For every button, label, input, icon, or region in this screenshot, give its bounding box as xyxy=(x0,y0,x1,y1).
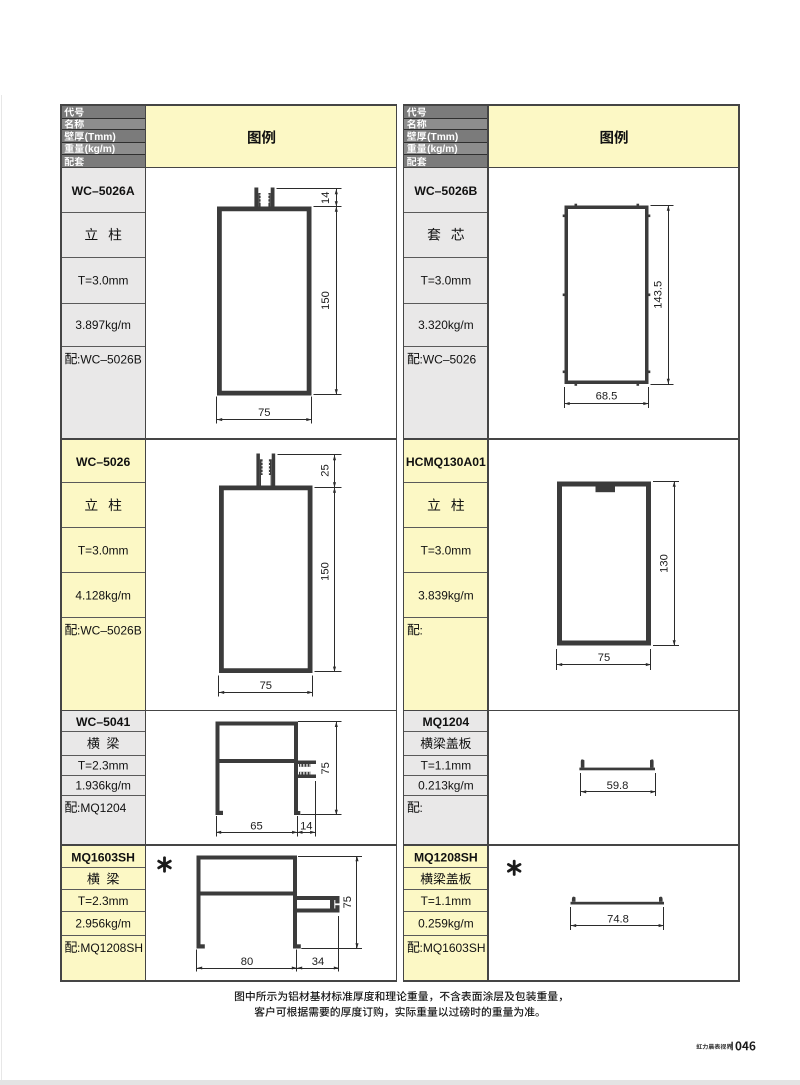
svg-text:150: 150 xyxy=(319,562,331,581)
svg-text::WC–5026: :WC–5026 xyxy=(420,352,477,366)
svg-text:0.259kg/m: 0.259kg/m xyxy=(418,917,474,931)
svg-text:(Tmm): (Tmm) xyxy=(85,132,116,143)
svg-text:T=1.1mm: T=1.1mm xyxy=(421,758,472,772)
svg-text:WC–5041: WC–5041 xyxy=(76,715,130,729)
svg-text::MQ1208SH: :MQ1208SH xyxy=(77,941,143,955)
svg-text:MQ1603SH: MQ1603SH xyxy=(71,850,135,864)
svg-text:1.936kg/m: 1.936kg/m xyxy=(75,778,131,792)
svg-text:150: 150 xyxy=(320,291,332,310)
svg-text:75: 75 xyxy=(320,762,332,774)
svg-text:75: 75 xyxy=(598,652,610,664)
svg-text::WC–5026B: :WC–5026B xyxy=(77,352,142,366)
svg-text:T=3.0mm: T=3.0mm xyxy=(421,273,472,287)
svg-text::MQ1603SH: :MQ1603SH xyxy=(420,941,486,955)
svg-text:75: 75 xyxy=(258,407,270,419)
svg-text:14: 14 xyxy=(320,192,332,204)
svg-text:T=3.0mm: T=3.0mm xyxy=(421,543,472,557)
svg-text:14: 14 xyxy=(300,820,312,832)
svg-text:143.5: 143.5 xyxy=(653,281,665,309)
svg-text::WC–5026B: :WC–5026B xyxy=(77,623,142,637)
svg-text:2.956kg/m: 2.956kg/m xyxy=(75,917,131,931)
svg-text:59.8: 59.8 xyxy=(607,780,629,792)
svg-text:4.128kg/m: 4.128kg/m xyxy=(75,588,131,602)
svg-text:25: 25 xyxy=(319,464,331,476)
svg-text:130: 130 xyxy=(659,554,671,573)
svg-text:T=2.3mm: T=2.3mm xyxy=(78,894,129,908)
svg-text:3.897kg/m: 3.897kg/m xyxy=(75,318,131,332)
svg-text:75: 75 xyxy=(260,680,272,692)
svg-text::MQ1204: :MQ1204 xyxy=(77,801,127,815)
svg-text:74.8: 74.8 xyxy=(607,914,629,926)
svg-text:T=3.0mm: T=3.0mm xyxy=(78,543,129,557)
svg-text:WC–5026: WC–5026 xyxy=(76,455,130,469)
svg-text:(Tmm): (Tmm) xyxy=(427,132,458,143)
svg-text:T=3.0mm: T=3.0mm xyxy=(78,273,129,287)
svg-text:HCMQ130A01: HCMQ130A01 xyxy=(406,455,486,469)
svg-text:75: 75 xyxy=(342,896,354,908)
svg-text:0.213kg/m: 0.213kg/m xyxy=(418,778,474,792)
svg-text:3.320kg/m: 3.320kg/m xyxy=(418,318,474,332)
svg-text:34: 34 xyxy=(312,956,324,968)
svg-text::: : xyxy=(420,801,423,815)
svg-text::: : xyxy=(420,623,423,637)
svg-text:3.839kg/m: 3.839kg/m xyxy=(418,588,474,602)
svg-text:T=1.1mm: T=1.1mm xyxy=(421,894,472,908)
svg-text:(kg/m): (kg/m) xyxy=(85,144,116,155)
svg-text:T=2.3mm: T=2.3mm xyxy=(78,758,129,772)
svg-text:MQ1204: MQ1204 xyxy=(422,715,469,729)
svg-text:65: 65 xyxy=(250,820,262,832)
svg-text:(kg/m): (kg/m) xyxy=(427,144,458,155)
svg-text:WC–5026A: WC–5026A xyxy=(72,184,135,198)
svg-text:80: 80 xyxy=(241,956,253,968)
svg-text:MQ1208SH: MQ1208SH xyxy=(414,850,478,864)
svg-text:WC–5026B: WC–5026B xyxy=(414,184,477,198)
svg-text:68.5: 68.5 xyxy=(596,391,618,403)
